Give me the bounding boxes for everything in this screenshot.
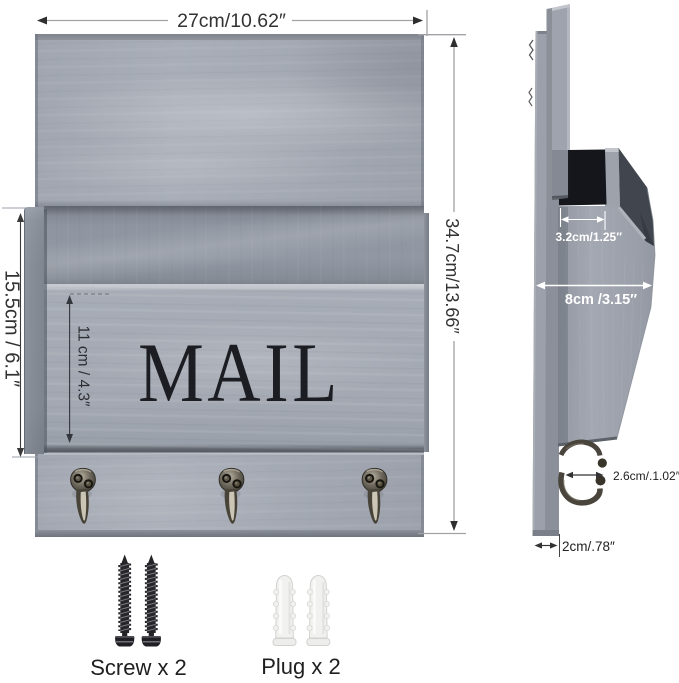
svg-text:34.7cm/13.66″: 34.7cm/13.66″ [442, 218, 462, 334]
svg-text:15.5cm / 6.1″: 15.5cm / 6.1″ [1, 270, 23, 387]
svg-text:11 cm / 4.3″: 11 cm / 4.3″ [75, 325, 92, 407]
svg-text:Screw x 2: Screw x 2 [90, 655, 187, 680]
svg-text:2.6cm/.1.02″: 2.6cm/.1.02″ [613, 469, 679, 483]
svg-text:8cm /3.15″: 8cm /3.15″ [565, 292, 637, 308]
svg-text:3.2cm/1.25″: 3.2cm/1.25″ [556, 230, 623, 244]
svg-text:27cm/10.62″: 27cm/10.62″ [177, 10, 286, 32]
svg-text:2cm/.78″: 2cm/.78″ [562, 539, 615, 554]
svg-text:Plug x 2: Plug x 2 [261, 654, 341, 679]
svg-text:MAIL: MAIL [138, 326, 341, 420]
